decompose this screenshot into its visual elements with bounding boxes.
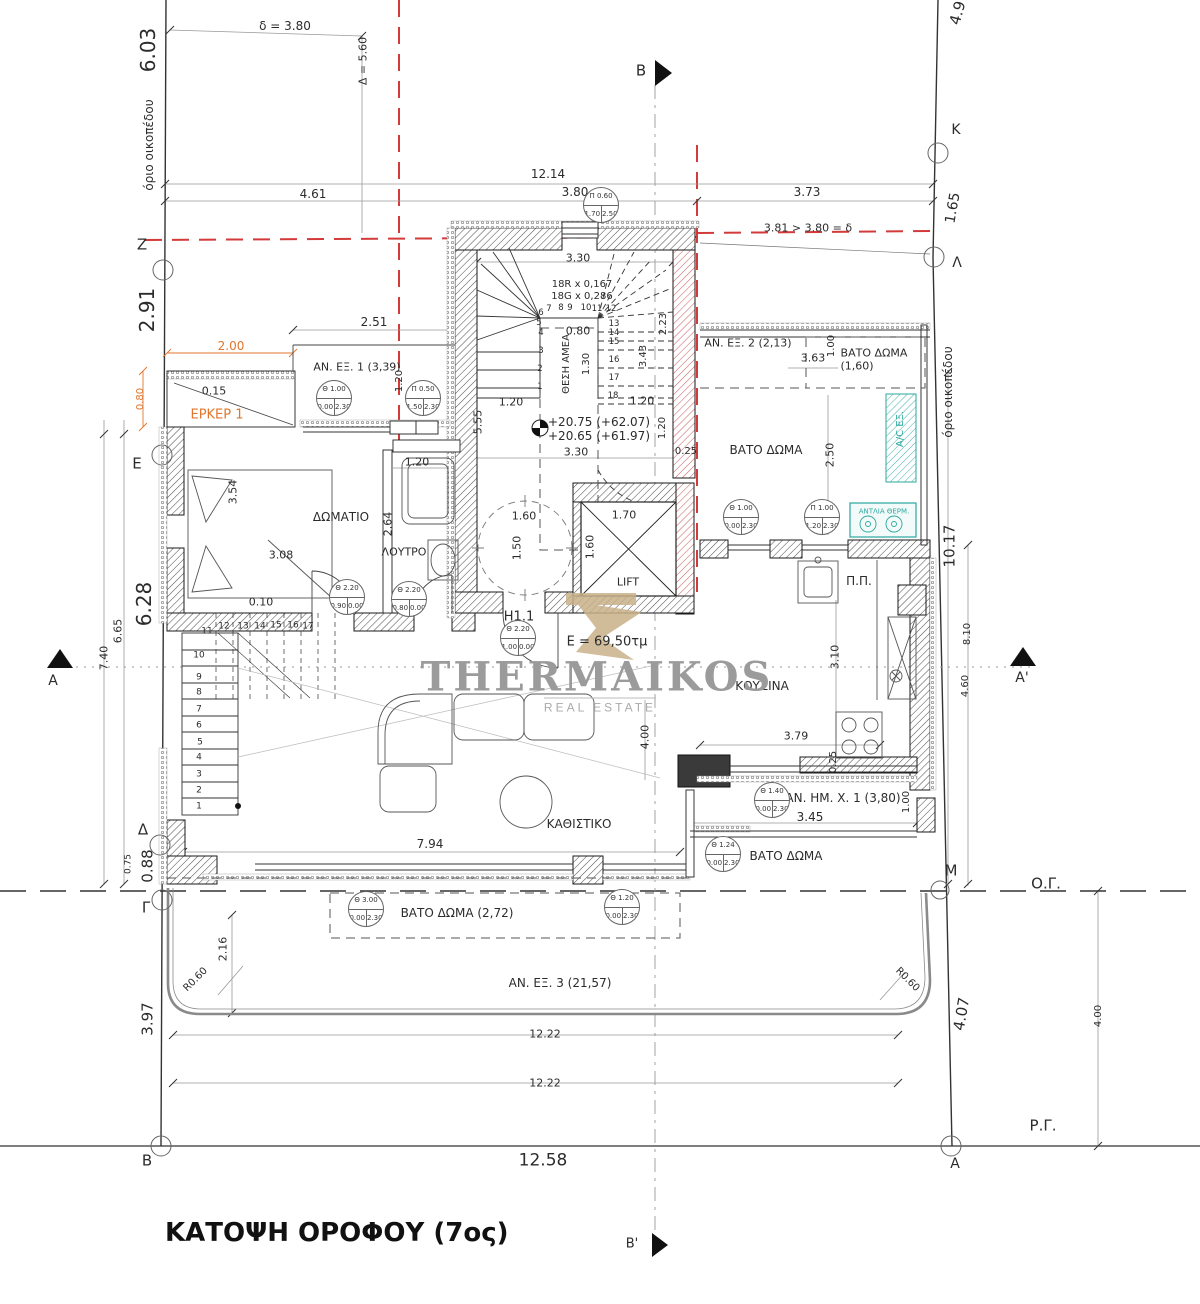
annotation-label: 10 (581, 304, 592, 313)
annotation-label: 1.00 (827, 335, 837, 357)
boundary-point-E: Ε (132, 457, 141, 472)
annotation-label: 6.28 (134, 582, 154, 627)
annotation-label: 7 (196, 706, 202, 715)
annotation-label: 2.16 (218, 937, 229, 962)
label-wheelchair-spot: ΘΕΣΗ ΑΜΕΑ (562, 334, 572, 394)
annotation-label: 16 (287, 622, 298, 631)
annotation-label: R0.60 (893, 966, 921, 994)
annotation-label: 5 (536, 319, 541, 328)
annotation-label: 4.9 (948, 0, 969, 26)
annotation-label: δ = 3.80 (259, 20, 311, 32)
annotation-label: 3.30 (564, 447, 589, 458)
annotation-label: 2.50 (825, 443, 836, 468)
annotation-label: 3 (538, 347, 543, 356)
opening-tag: Θ 2.200.900.00 (329, 579, 365, 615)
annotation-label: 4.00 (640, 725, 651, 750)
section-marker-B2: B' (626, 1238, 639, 1251)
boundary-point-K: K (951, 123, 960, 137)
label-building-line: Ο.Γ. (1031, 877, 1061, 892)
annotation-label: 0.75 (125, 854, 134, 874)
annotation-label: 7.94 (417, 838, 444, 850)
annotation-label: 3.73 (794, 186, 821, 198)
annotation-label: 4 (538, 329, 543, 338)
annotation-label: 6 (538, 309, 543, 318)
annotation-label: R0.60 (182, 966, 210, 994)
area-label: E = 69,50τμ (567, 636, 648, 649)
opening-tag: Θ 2.200.800.00 (391, 581, 427, 617)
annotation-label: 10 (193, 652, 204, 661)
annotation-label: 1.00 (902, 791, 912, 813)
opening-tag: Θ 3.000.002.30 (348, 891, 384, 927)
annotation-label: 2.51 (361, 316, 388, 328)
label-heat-pump: ΑΝΤΛΙΑ ΘΕΡΜ. (859, 509, 910, 516)
annotation-label: 3.79 (784, 731, 809, 742)
opening-tag: Θ 2.201.000.00 (500, 620, 536, 656)
annotation-label: 1 (537, 383, 542, 392)
annotation-label: 4.61 (300, 188, 327, 200)
room-label-bato-doma-272: ΒΑΤΟ ΔΩΜΑ (2,72) (401, 907, 514, 919)
annotation-label: 2.00 (218, 340, 245, 352)
annotation-label: 9 (196, 674, 202, 683)
annotation-label: 2 (537, 365, 542, 374)
section-marker-B: B (636, 64, 646, 79)
annotation-label: 3.08 (269, 550, 294, 561)
annotation-label: 18R x 0,167 (552, 280, 613, 290)
annotation-label: 0.10 (249, 597, 274, 608)
annotation-label: 1.20 (405, 457, 430, 468)
annotation-label: 3.97 (141, 1002, 156, 1035)
annotation-label: 15 (270, 622, 281, 631)
annotation-label: 1.70 (612, 510, 637, 521)
level-annotation-1: +20.75 (+62.07) (548, 416, 650, 428)
room-label-erker-1: ΕΡΚΕΡ 1 (190, 409, 243, 422)
annotation-label: 12.14 (531, 168, 565, 180)
annotation-label: 3 (196, 771, 202, 780)
annotation-label: 1.20 (658, 417, 668, 439)
annotation-label: 2.64 (383, 512, 394, 537)
annotation-label: 3.30 (566, 253, 591, 264)
opening-tag: Π 0.501.502.30 (405, 380, 441, 416)
dim-6.03: 6.03 (138, 28, 158, 73)
annotation-label: 12 (606, 305, 617, 314)
annotation-label: 8 (558, 304, 563, 313)
annotation-label: 1 (196, 803, 202, 812)
opening-tag: Π 1.001.202.30 (804, 499, 840, 535)
plot-boundary-label-right: όριο οικοπέδου (942, 346, 954, 437)
opening-tag: Θ 1.200.002.30 (604, 889, 640, 925)
boundary-point-A: A (950, 1157, 960, 1171)
annotation-label: 1.20 (630, 396, 655, 407)
annotation-label: 4.60 (961, 675, 971, 697)
room-label-bato-doma-ne: ΒΑΤΟ ΔΩΜΑ (730, 444, 803, 456)
annotation-label: 0.25 (829, 751, 839, 773)
room-label-bato-doma-160: ΒΑΤΟ ΔΩΜΑ (841, 348, 908, 359)
annotation-label: 2 (196, 787, 202, 796)
boundary-point-M: M (945, 864, 958, 879)
annotation-label: Δ = 5.60 (358, 37, 369, 85)
annotation-label: 6.65 (113, 619, 124, 644)
annotation-label: 8.10 (963, 623, 973, 645)
annotation-label: 12.22 (529, 1078, 561, 1089)
boundary-point-B: B (142, 1154, 152, 1169)
annotation-label: 3.43 (639, 345, 649, 367)
watermark-name: THERMAIKOS (421, 654, 774, 701)
annotation-label: 11 (201, 628, 212, 637)
label-street-line: Ρ.Γ. (1030, 1119, 1057, 1134)
annotation-label: 1.60 (512, 511, 537, 522)
room-label-lift: LIFT (617, 577, 639, 588)
opening-tag: Θ 1.400.002.30 (754, 782, 790, 818)
annotation-label: 6 (196, 722, 202, 731)
annotation-label: 3.54 (228, 480, 239, 505)
annotation-label: 2.91 (137, 288, 157, 333)
room-label-bathroom: ΛΟΥΤΡΟ (382, 547, 427, 558)
annotation-label: 12.22 (529, 1029, 561, 1040)
annotation-label: 10.17 (943, 525, 958, 568)
annotation-label: 0.25 (675, 447, 697, 457)
room-label-bato-doma-se: ΒΑΤΟ ΔΩΜΑ (750, 850, 823, 862)
annotation-label: 1.20 (499, 397, 524, 408)
annotation-label: 11 (592, 305, 603, 314)
annotation-label: 2.23 (659, 313, 669, 335)
annotation-label: 1.65 (943, 191, 962, 224)
opening-tag: Θ 1.000.002.30 (723, 499, 759, 535)
boundary-point-D: Δ (138, 823, 148, 838)
label-washing-machine: Π.Π. (846, 575, 872, 587)
annotation-label: (1,60) (840, 361, 873, 372)
annotation-label: 18 (608, 392, 619, 401)
annotation-label: 5.55 (473, 410, 484, 435)
annotation-label: 7 (546, 305, 551, 314)
label-ac-unit: A/C ΕΞ. (896, 411, 906, 447)
annotation-label: 14 (254, 623, 265, 632)
annotation-label: 1.60 (585, 535, 596, 560)
annotation-label: 16 (609, 356, 620, 365)
annotation-label: 3.10 (830, 645, 841, 670)
section-marker-A2: A' (1015, 671, 1028, 685)
annotation-label: 18G x 0,286 (551, 292, 612, 302)
opening-tag: Θ 1.000.002.30 (316, 380, 352, 416)
annotation-label: 4.07 (952, 996, 973, 1032)
floor-plan-canvas: 6.03όριο οικοπέδουδ = 3.80Δ = 5.6012.144… (0, 0, 1200, 1304)
boundary-point-Z: Z (137, 238, 147, 253)
annotation-label: 1.20 (395, 370, 405, 392)
annotation-label: 4.00 (1094, 1005, 1104, 1027)
section-marker-A: A (48, 674, 58, 688)
annotation-label: 9 (567, 304, 572, 313)
annotation-label: 17 (302, 623, 313, 632)
annotation-label: 0.15 (202, 386, 227, 397)
room-label-an-ex-3: ΑΝ. ΕΞ. 3 (21,57) (509, 977, 612, 989)
annotation-label: 7.40 (99, 646, 110, 671)
opening-tag: Π 0.601.702.50 (583, 187, 619, 223)
annotation-label: 4 (196, 754, 202, 763)
annotation-label: 17 (609, 374, 620, 383)
room-label-an-ex-2: ΑΝ. ΕΞ. 2 (2,13) (704, 338, 791, 349)
annotation-label: 8 (196, 689, 202, 698)
annotation-label: 0.88 (141, 849, 156, 882)
annotation-label: 3.63 (801, 353, 826, 364)
annotation-label: 12.58 (519, 1153, 568, 1170)
annotation-label: 0.80 (136, 388, 146, 410)
annotation-label: 1.50 (512, 536, 523, 561)
room-label-an-im-x-1: ΑΝ. ΗΜ. Χ. 1 (3,80) (785, 792, 900, 804)
annotation-label: 15 (609, 338, 620, 347)
annotation-label: 5 (197, 739, 203, 748)
annotation-label: 13 (237, 623, 248, 632)
opening-tag: Θ 1.240.002.30 (705, 836, 741, 872)
plot-boundary-label-left: όριο οικοπέδου (143, 99, 155, 190)
annotation-label: 3.45 (797, 811, 824, 823)
room-label-bedroom: ΔΩΜΑΤΙΟ (313, 511, 369, 523)
level-annotation-2: +20.65 (+61.97) (548, 430, 650, 442)
annotation-layer: 6.03όριο οικοπέδουδ = 3.80Δ = 5.6012.144… (0, 0, 1200, 1304)
drawing-title: ΚΑΤΟΨΗ ΟΡΟΦΟΥ (7ος) (165, 1218, 508, 1248)
annotation-label: 3.81 > 3.80 = δ (764, 223, 852, 234)
boundary-point-G: Γ (142, 901, 150, 916)
watermark-subtitle: REAL ESTATE (544, 698, 656, 715)
annotation-label: 12 (218, 623, 229, 632)
room-label-an-ex-1: ΑΝ. ΕΞ. 1 (3,39) (313, 362, 400, 373)
annotation-label: 1.30 (582, 353, 592, 375)
room-label-living: ΚΑΘΙΣΤΙΚΟ (547, 818, 612, 830)
boundary-point-L: Λ (952, 256, 962, 270)
